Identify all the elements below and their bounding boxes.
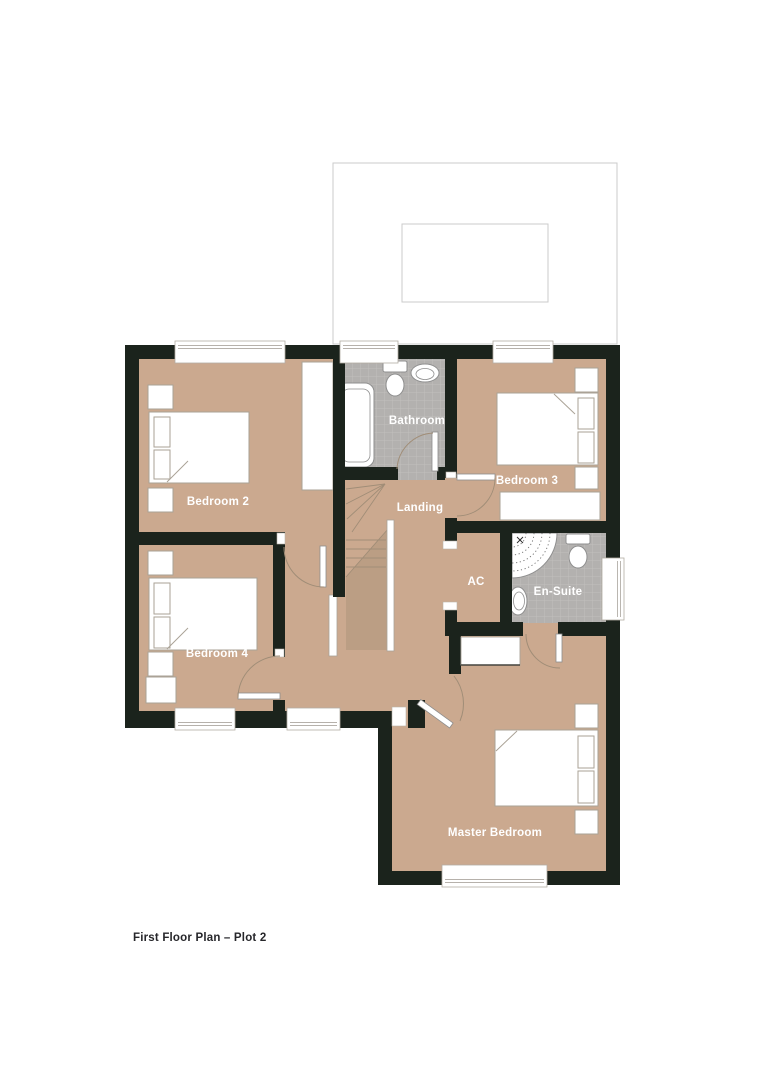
wardrobe-bedroom-3 [500,492,600,520]
window [175,341,285,363]
floor-plan-page: Bedroom 2 Bathroom Bedroom 3 Landing AC … [0,0,764,1080]
room-label-bedroom-2: Bedroom 2 [187,496,249,508]
chest-bedroom-4 [146,677,176,703]
toilet-icon [386,374,404,396]
door-leaf-bedroom-4 [238,693,280,699]
window [442,865,547,887]
bedside-table [575,704,598,728]
room-label-ensuite: En-Suite [534,586,583,598]
stair-banister-right [387,520,394,651]
roof-outline [333,163,617,344]
pillow [578,432,594,463]
plan-caption: First Floor Plan – Plot 2 [133,932,266,944]
bedside-table [575,810,598,834]
rooflight-outline [402,224,548,302]
toilet-tank [566,534,590,544]
room-label-ac: AC [467,576,484,588]
pillow [154,583,170,614]
window [340,341,398,363]
pillow [154,450,170,479]
room-label-master-bedroom: Master Bedroom [448,827,542,839]
window [175,708,235,730]
window [493,341,553,363]
window [287,708,340,730]
room-label-landing: Landing [397,502,443,514]
room-label-bedroom-4: Bedroom 4 [186,648,249,660]
pillow [578,736,594,768]
bedside-table [148,488,173,512]
cupboard-front [461,637,520,665]
bedside-table [148,652,173,676]
pillow [578,398,594,429]
pillow [154,417,170,447]
bedside-table [148,551,173,575]
door-leaf-bathroom [432,432,438,471]
door-leaf-bedroom-3 [457,474,495,480]
wardrobe-bedroom-2 [302,362,333,490]
toilet-icon [569,546,587,568]
door-leaf-bedroom-2 [320,546,326,587]
bedside-table [148,385,173,409]
floor-plan-drawing: Bedroom 2 Bathroom Bedroom 3 Landing AC … [0,0,764,1080]
pillow [154,617,170,648]
room-label-bathroom: Bathroom [389,415,445,427]
bedside-table [575,368,598,392]
stair-banister-left [329,595,337,656]
pillow [578,771,594,803]
bedside-table [575,467,598,489]
door-leaf-ensuite [556,634,562,662]
room-label-bedroom-3: Bedroom 3 [496,475,558,487]
